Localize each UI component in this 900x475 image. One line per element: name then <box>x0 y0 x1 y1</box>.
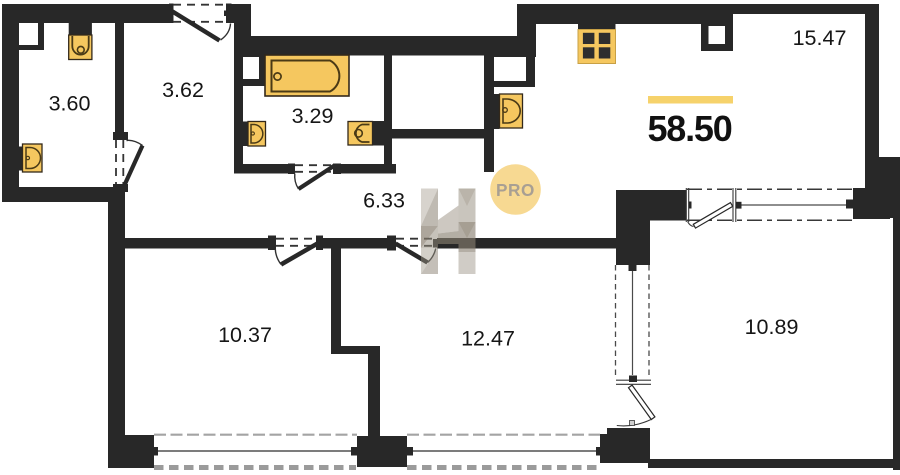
svg-text:PRO: PRO <box>496 180 535 200</box>
svg-text:15.47: 15.47 <box>793 26 847 50</box>
svg-text:3.62: 3.62 <box>162 78 204 102</box>
svg-text:3.60: 3.60 <box>49 92 91 116</box>
svg-text:58.50: 58.50 <box>647 108 731 149</box>
svg-text:10.89: 10.89 <box>745 315 799 339</box>
svg-text:6.33: 6.33 <box>363 189 405 213</box>
svg-text:12.47: 12.47 <box>461 327 515 351</box>
svg-text:3.29: 3.29 <box>292 104 334 128</box>
svg-text:10.37: 10.37 <box>218 323 272 347</box>
